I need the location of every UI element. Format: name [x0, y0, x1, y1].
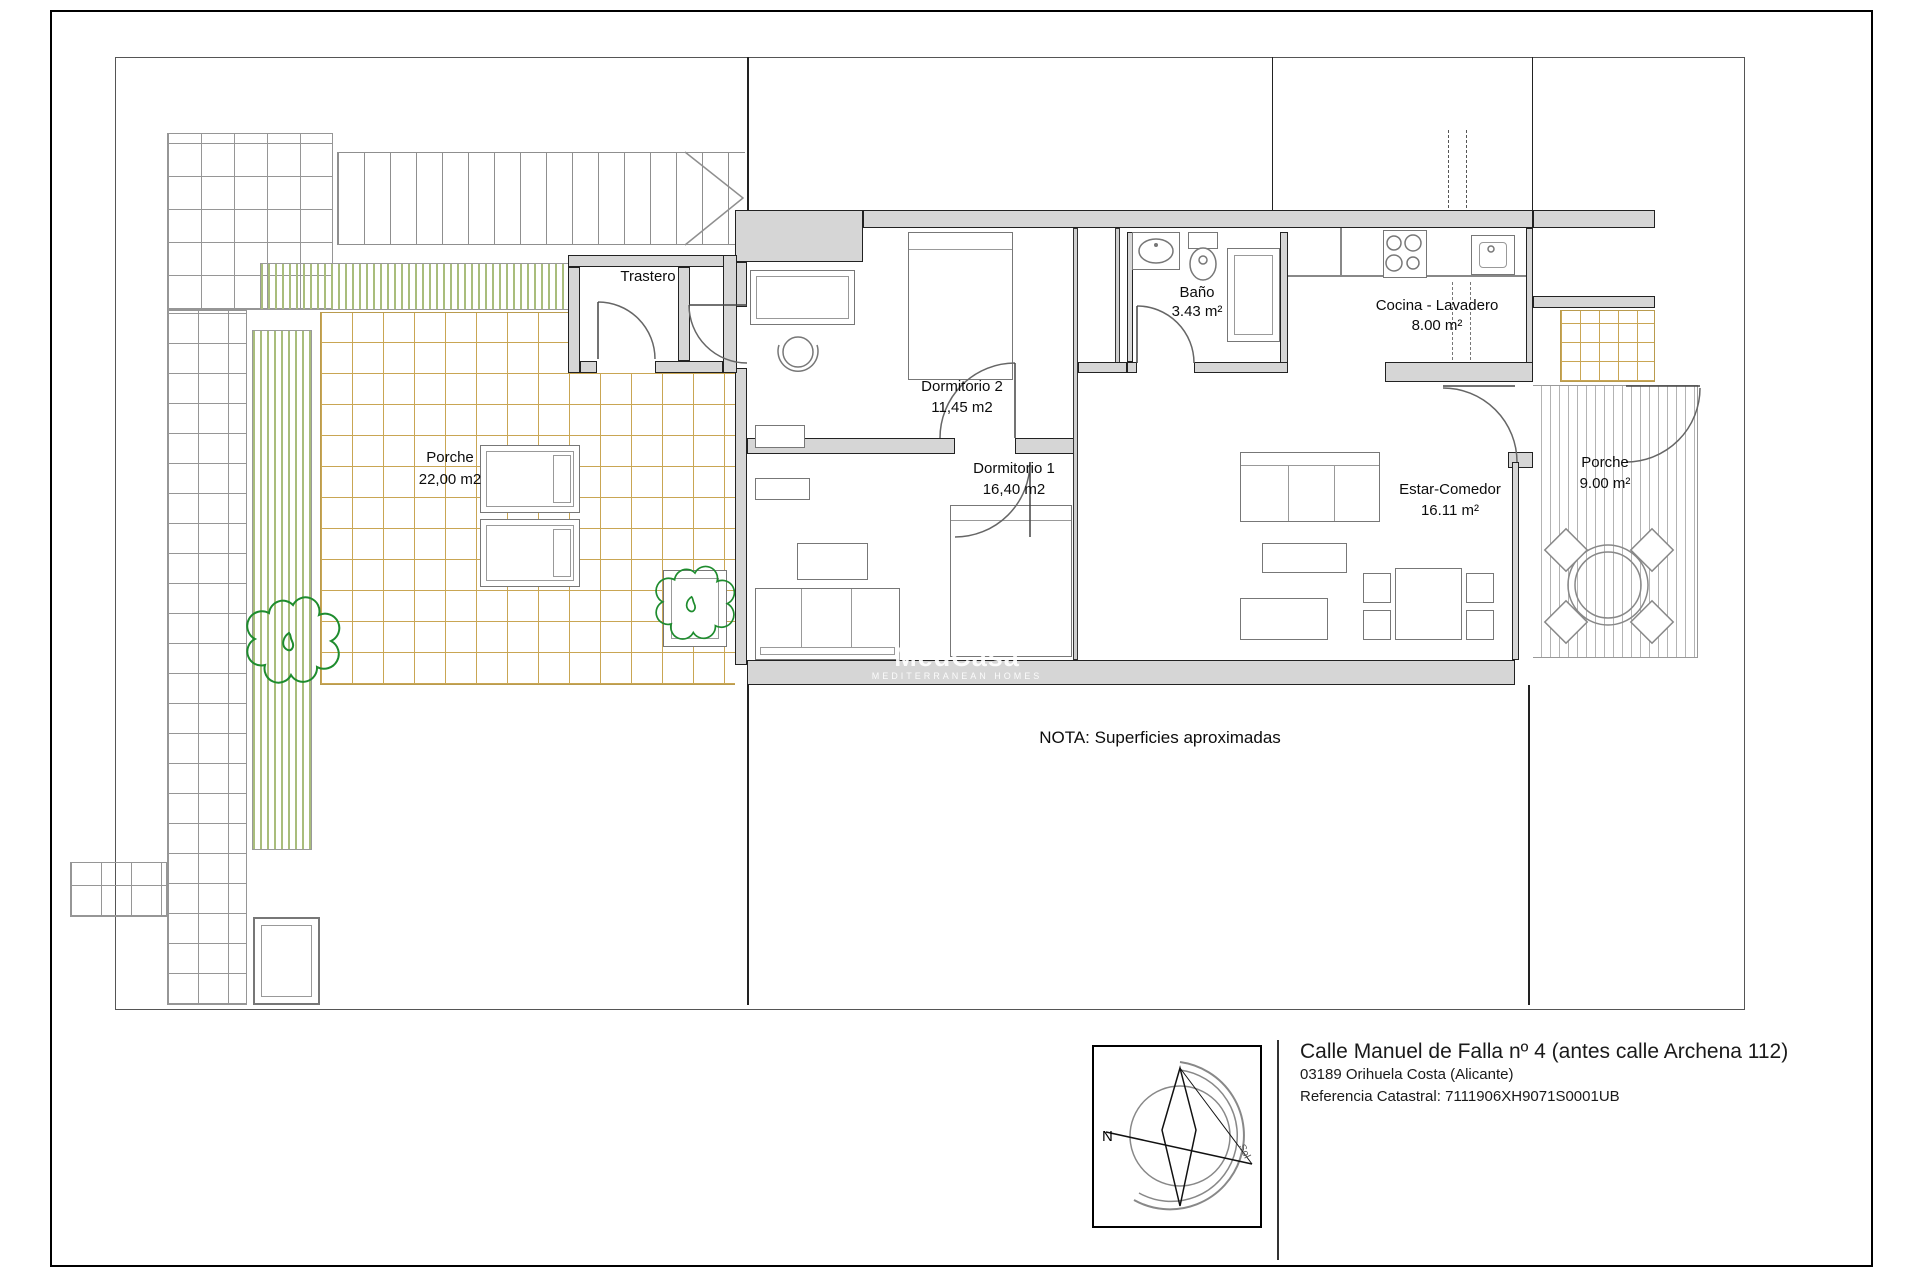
room-label-porche-izq: Porche 22,00 m2: [419, 447, 482, 491]
room-name: Porche: [419, 447, 482, 469]
coffee-table: [797, 543, 868, 580]
address-line-1: Calle Manuel de Falla nº 4 (antes calle …: [1300, 1040, 1788, 1064]
dashed-line: [1448, 130, 1449, 208]
room-label-estar: Estar-Comedor 16.11 m²: [1399, 479, 1501, 521]
shelf: [755, 425, 805, 448]
desk: [750, 270, 855, 325]
sofa: [755, 588, 900, 660]
wall-segment: [1015, 438, 1078, 454]
tile-grid-column: [167, 310, 247, 1005]
wall-segment: [723, 255, 737, 373]
wall-segment: [655, 361, 723, 373]
washbasin: [1132, 232, 1180, 270]
chair: [1466, 573, 1494, 603]
room-name: Dormitorio 2: [921, 376, 1003, 397]
room-area: 22,00 m2: [419, 469, 482, 491]
compass-box: [1092, 1045, 1262, 1228]
planter-pot: [663, 570, 727, 647]
wall-segment: [580, 361, 597, 373]
tile-grid-arm: [70, 862, 167, 917]
wall-segment: [1533, 210, 1655, 228]
wall-segment: [678, 267, 690, 361]
stairs-hatch: [337, 152, 745, 245]
boundary-line: [1272, 57, 1273, 210]
sofa: [1240, 452, 1380, 522]
room-label-porche-der: Porche 9.00 m²: [1580, 452, 1631, 494]
planter-strip: [252, 330, 312, 850]
room-name: Porche: [1580, 452, 1631, 473]
wall-segment: [1512, 462, 1519, 660]
dashed-line: [1466, 130, 1467, 208]
toilet-cistern: [1188, 232, 1218, 249]
wardrobe: [1227, 248, 1280, 342]
room-area: 3.43 m²: [1172, 302, 1223, 321]
wall-segment: [1533, 296, 1655, 308]
boundary-line: [1528, 685, 1530, 1005]
room-name: Trastero: [620, 268, 675, 285]
sideboard: [1240, 598, 1328, 640]
wall-segment: [1526, 228, 1533, 382]
wall-segment: [735, 210, 863, 262]
room-label-trastero: Trastero: [620, 266, 675, 287]
gate-frame: [253, 917, 320, 1005]
shelf: [755, 478, 810, 500]
stove: [1383, 230, 1427, 278]
room-area: 16.11 m²: [1399, 500, 1501, 521]
room-name: Dormitorio 1: [973, 458, 1055, 479]
wall-segment: [1073, 228, 1078, 660]
chair: [1363, 573, 1391, 603]
bed: [950, 505, 1072, 657]
room-name: Cocina - Lavadero: [1376, 296, 1499, 316]
bed: [908, 232, 1013, 380]
counter-divider: [1340, 228, 1342, 276]
wall-segment: [568, 267, 580, 373]
approx-note: NOTA: Superficies aproximadas: [1039, 728, 1281, 748]
room-area: 16,40 m2: [973, 479, 1055, 500]
wall-segment: [863, 210, 1533, 228]
sun-lounger: [480, 445, 580, 513]
decking-right-porch: [1522, 385, 1698, 658]
room-label-dormitorio1: Dormitorio 1 16,40 m2: [973, 458, 1055, 500]
room-area: 8.00 m²: [1376, 316, 1499, 336]
room-area: 11,45 m2: [921, 397, 1003, 418]
room-name: Baño: [1172, 283, 1223, 302]
tv-stand: [1262, 543, 1347, 573]
wall-segment: [1385, 362, 1533, 382]
wall-segment: [1127, 362, 1137, 373]
address-line-3: Referencia Catastral: 7111906XH9071S0001…: [1300, 1088, 1620, 1105]
wall-segment: [747, 660, 1515, 685]
room-area: 9.00 m²: [1580, 473, 1631, 494]
wall-segment: [1280, 232, 1288, 373]
paving-grid-right: [1560, 310, 1655, 382]
titleblock-separator: [1277, 1040, 1279, 1260]
room-label-bano: Baño 3.43 m²: [1172, 283, 1223, 321]
room-label-cocina: Cocina - Lavadero 8.00 m²: [1376, 296, 1499, 336]
boundary-line: [747, 685, 749, 1005]
dining-table: [1395, 568, 1462, 640]
boundary-line: [1532, 57, 1533, 210]
room-label-dormitorio2: Dormitorio 2 11,45 m2: [921, 376, 1003, 418]
chair: [1466, 610, 1494, 640]
kitchen-sink: [1471, 235, 1515, 275]
chair: [1363, 610, 1391, 640]
address-line-2: 03189 Orihuela Costa (Alicante): [1300, 1066, 1513, 1083]
wall-segment: [1194, 362, 1288, 373]
wall-segment: [1078, 362, 1127, 373]
wall-segment: [1115, 228, 1120, 365]
room-name: Estar-Comedor: [1399, 479, 1501, 500]
wall-segment: [735, 368, 747, 665]
boundary-line: [747, 57, 749, 210]
sun-lounger: [480, 519, 580, 587]
floor-plan-sheet: N Sol Trastero Porche 22,00 m2 Dormitori…: [0, 0, 1920, 1280]
